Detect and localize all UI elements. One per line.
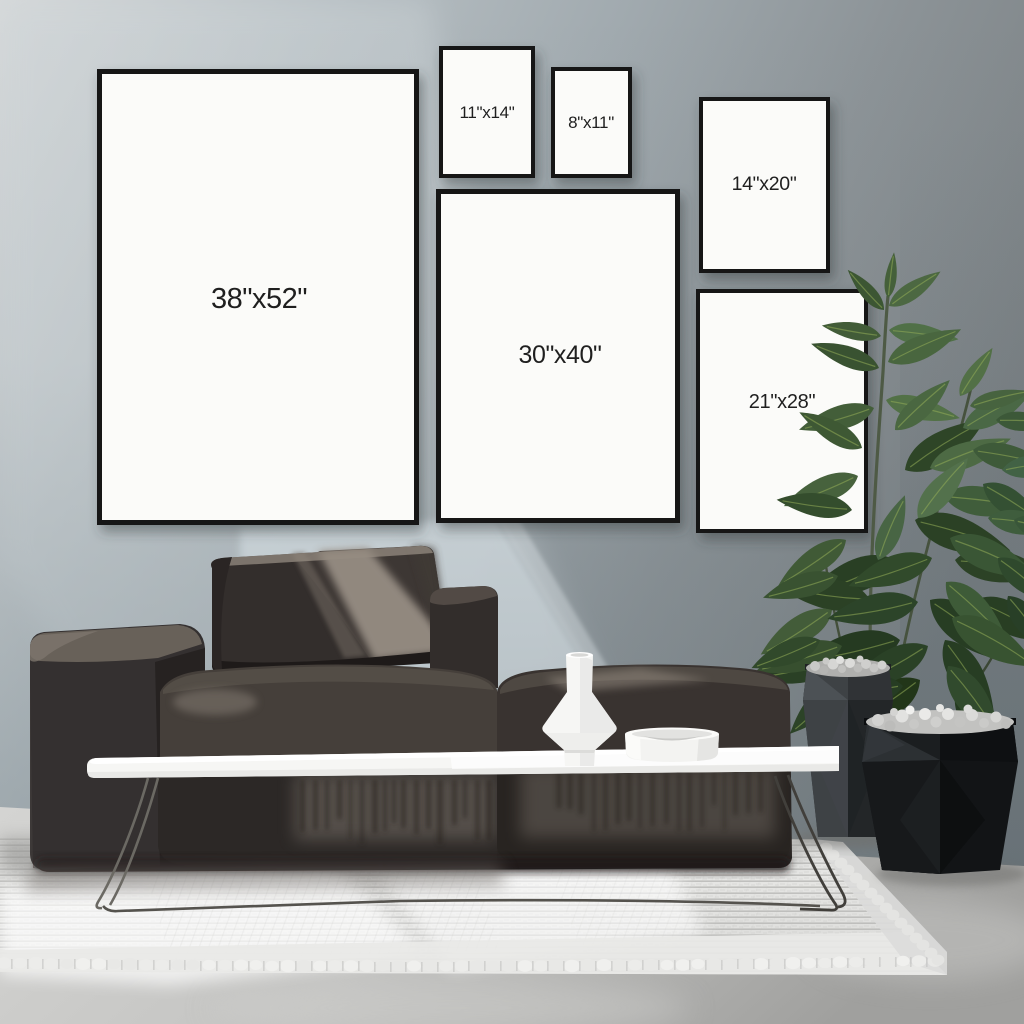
svg-text:38"x52": 38"x52" [211, 283, 307, 315]
svg-text:21"x28": 21"x28" [749, 391, 816, 413]
svg-text:8"x11": 8"x11" [568, 113, 614, 132]
svg-text:11"x14": 11"x14" [459, 103, 514, 122]
svg-text:30"x40": 30"x40" [518, 341, 601, 369]
svg-text:14"x20": 14"x20" [732, 173, 797, 195]
